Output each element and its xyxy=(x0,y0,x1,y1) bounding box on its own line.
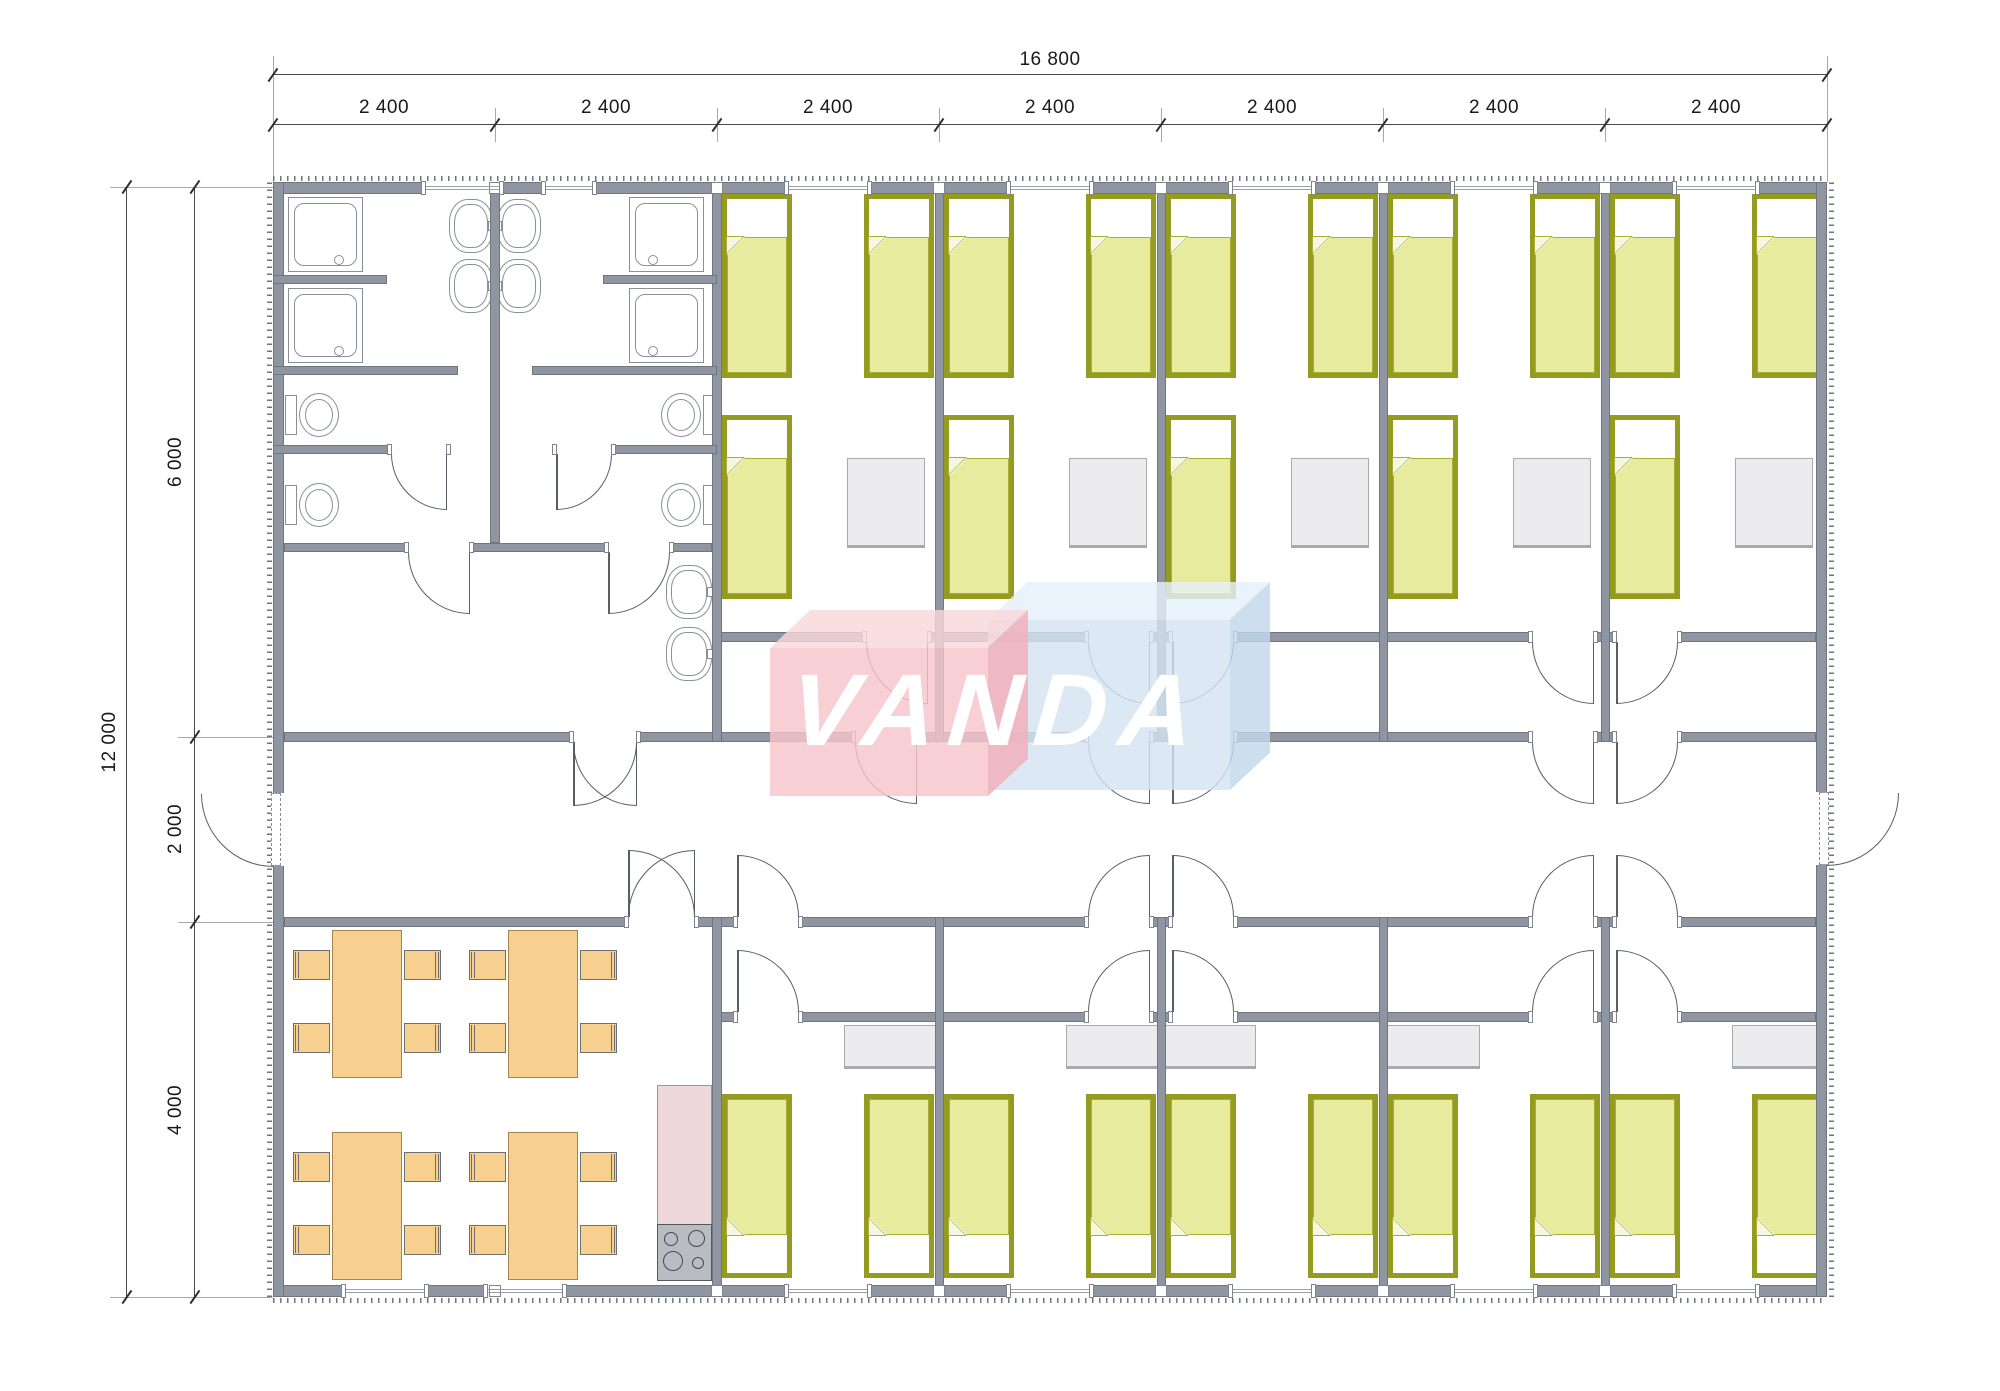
window-glazing xyxy=(545,186,593,187)
module-joint xyxy=(1377,1285,1389,1297)
door-leaf xyxy=(1616,855,1618,917)
door-leaf xyxy=(1149,950,1151,1012)
module-joint xyxy=(933,182,945,194)
chair-backrest xyxy=(611,1154,615,1180)
door-post xyxy=(1593,1011,1598,1023)
window-glazing xyxy=(1232,1289,1312,1290)
window-jamb xyxy=(784,1284,789,1298)
dim-label-module-2: 2 400 xyxy=(581,97,631,119)
bed-pillow xyxy=(727,420,787,458)
door-post xyxy=(1168,1011,1173,1023)
door-post xyxy=(1084,916,1089,928)
window xyxy=(1010,1285,1090,1297)
vanda-logo-text: VANDA xyxy=(782,640,1214,780)
wardrobe-front-edge xyxy=(1387,1067,1480,1069)
bed-pillow xyxy=(949,420,1009,458)
chair-backrest xyxy=(471,1227,475,1253)
bed-pillow xyxy=(1091,1235,1151,1273)
door-opening xyxy=(556,445,612,454)
door-leaf xyxy=(446,454,448,510)
module-joint xyxy=(933,1285,945,1297)
wardrobe-front-edge xyxy=(1069,546,1147,548)
wall xyxy=(490,182,500,543)
wardrobe xyxy=(844,1025,937,1067)
door-leaf xyxy=(636,742,638,806)
door-post xyxy=(1612,916,1617,928)
window-glazing xyxy=(788,186,868,187)
dining-table xyxy=(508,930,578,1078)
door-post xyxy=(1084,1011,1089,1023)
bed-pillow xyxy=(1757,1235,1817,1273)
door-leaf xyxy=(1593,855,1595,917)
door-post xyxy=(1528,1011,1533,1023)
window xyxy=(345,1285,425,1297)
dim-line-top-modules xyxy=(273,124,1827,125)
bed-pillow xyxy=(1091,199,1151,237)
wall xyxy=(1379,182,1388,742)
shower-tray-inner xyxy=(294,294,357,357)
door-opening xyxy=(408,543,470,552)
toilet-bowl-inner xyxy=(305,399,333,431)
door-post xyxy=(624,916,629,928)
door-opening xyxy=(1616,732,1678,742)
stove-burner-icon xyxy=(688,1230,705,1247)
bed-pillow xyxy=(727,199,787,237)
corrugation xyxy=(1829,182,1834,1297)
door-swing-arc xyxy=(1088,855,1150,917)
toilet-tank xyxy=(285,395,297,435)
wall xyxy=(273,445,391,454)
wardrobe xyxy=(847,458,925,546)
door-opening xyxy=(1532,917,1594,927)
window-jamb xyxy=(592,181,597,195)
door-post xyxy=(1149,916,1154,928)
bed-blanket xyxy=(1393,237,1453,373)
door-opening xyxy=(628,917,695,927)
door-opening xyxy=(737,917,799,927)
module-joint xyxy=(1599,182,1611,194)
wall xyxy=(1601,917,1610,1297)
door-swing-arc xyxy=(1532,742,1594,804)
wall xyxy=(1379,917,1388,1297)
door-opening xyxy=(1172,917,1234,927)
door-leaf xyxy=(469,552,471,614)
dim-label-total-height: 12 000 xyxy=(99,711,121,772)
window-glazing xyxy=(345,1289,425,1290)
dining-table xyxy=(508,1132,578,1280)
door-opening xyxy=(1532,732,1594,742)
dim-label-total-width: 16 800 xyxy=(1019,49,1080,71)
toilet-tank xyxy=(285,485,297,525)
door-post xyxy=(1593,731,1598,743)
chair-backrest xyxy=(435,952,439,978)
window-glazing xyxy=(1010,186,1090,187)
window-glazing xyxy=(1232,186,1312,187)
bed-pillow xyxy=(869,199,929,237)
door-opening xyxy=(608,543,670,552)
bed-pillow xyxy=(1171,1235,1231,1273)
door-leaf xyxy=(737,950,739,1012)
door-opening xyxy=(1088,1012,1150,1022)
corrugation xyxy=(267,182,272,1297)
window-glazing xyxy=(788,1289,868,1290)
window-jamb xyxy=(1533,181,1538,195)
door-post xyxy=(798,1011,803,1023)
door-swing-arc xyxy=(1532,642,1594,704)
floor-plan: 16 8002 4002 4002 4002 4002 4002 4002 40… xyxy=(0,0,2000,1391)
shower-drain-icon xyxy=(334,346,344,356)
door-post xyxy=(1593,631,1598,643)
door-swing-arc xyxy=(1532,855,1594,917)
door-leaf xyxy=(737,855,739,917)
door-leaf xyxy=(1616,950,1618,1012)
door-opening xyxy=(1088,917,1150,927)
stove-burner-icon xyxy=(663,1251,683,1271)
dim-label-section-bottom: 4 000 xyxy=(165,1085,187,1135)
door-swing-arc xyxy=(608,552,670,614)
window-glazing xyxy=(1454,189,1534,190)
bed-blanket xyxy=(1313,237,1373,373)
door-leaf xyxy=(1616,742,1618,804)
door-post xyxy=(1677,1011,1682,1023)
window-jamb xyxy=(1755,1284,1760,1298)
window-jamb xyxy=(499,181,504,195)
wardrobe-front-edge xyxy=(1513,546,1591,548)
dim-ext-line xyxy=(110,1297,273,1298)
window-jamb xyxy=(867,1284,872,1298)
chair-backrest xyxy=(611,1025,615,1051)
door-post xyxy=(404,542,409,553)
bed-blanket xyxy=(1535,237,1595,373)
door-opening xyxy=(737,1012,799,1022)
module-joint xyxy=(1599,1285,1611,1297)
bed-pillow xyxy=(1171,199,1231,237)
washbasin-inner xyxy=(454,204,488,248)
bed-pillow xyxy=(1313,1235,1373,1273)
wall xyxy=(712,917,722,1297)
door-opening xyxy=(391,445,447,454)
window-glazing xyxy=(1232,189,1312,190)
door-opening xyxy=(573,732,637,742)
bed-pillow xyxy=(1171,420,1231,458)
door-post xyxy=(1677,631,1682,643)
wardrobe xyxy=(1735,458,1813,546)
bed-blanket xyxy=(869,1099,929,1235)
washbasin-inner xyxy=(671,570,707,614)
dim-label-section-top: 6 000 xyxy=(165,437,187,487)
door-leaf xyxy=(556,454,558,510)
bed-pillow xyxy=(1615,420,1675,458)
wall xyxy=(273,275,387,284)
window-glazing xyxy=(425,186,500,187)
door-opening xyxy=(1532,632,1594,642)
module-joint xyxy=(711,182,723,194)
window-glazing xyxy=(1010,189,1090,190)
bed-pillow xyxy=(1535,199,1595,237)
wall xyxy=(1816,182,1827,1297)
window-jamb xyxy=(784,181,789,195)
chair-backrest xyxy=(435,1025,439,1051)
door-swing-arc xyxy=(391,454,447,510)
bed-blanket xyxy=(949,237,1009,373)
window-jamb xyxy=(541,181,546,195)
door-post xyxy=(798,916,803,928)
stove-burner-icon xyxy=(692,1257,704,1269)
dim-label-module-6: 2 400 xyxy=(1469,97,1519,119)
wall xyxy=(935,917,944,1297)
stove-burner-icon xyxy=(664,1232,678,1246)
corrugation xyxy=(273,1298,1827,1303)
bed-blanket xyxy=(1171,237,1231,373)
wardrobe xyxy=(1291,458,1369,546)
wall xyxy=(532,366,717,375)
dim-label-module-3: 2 400 xyxy=(803,97,853,119)
chair-backrest xyxy=(471,952,475,978)
wardrobe xyxy=(1069,458,1147,546)
bed-blanket xyxy=(727,1099,787,1235)
bed-pillow xyxy=(727,1235,787,1273)
door-post xyxy=(1168,916,1173,928)
window-jamb xyxy=(1089,181,1094,195)
dim-label-section-corridor: 2 000 xyxy=(165,804,187,854)
window-glazing xyxy=(1676,189,1756,190)
door-swing-arc xyxy=(1616,855,1678,917)
bed-pillow xyxy=(1535,1235,1595,1273)
window-jamb xyxy=(562,1284,567,1298)
bed-pillow xyxy=(1393,199,1453,237)
wall xyxy=(599,445,717,454)
window-glazing xyxy=(1676,1289,1756,1290)
window-glazing xyxy=(425,189,500,190)
shower-drain-icon xyxy=(648,346,658,356)
wall xyxy=(273,182,284,1297)
shower-tray-inner xyxy=(635,294,698,357)
wardrobe-front-edge xyxy=(1732,1067,1825,1069)
window xyxy=(1232,182,1312,194)
bed-blanket xyxy=(949,1099,1009,1235)
bed-pillow xyxy=(869,1235,929,1273)
window-jamb xyxy=(424,1284,429,1298)
bed-blanket xyxy=(727,237,787,373)
door-post xyxy=(733,916,738,928)
bed-pillow xyxy=(949,199,1009,237)
wardrobe-front-edge xyxy=(1163,1067,1256,1069)
washbasin-inner xyxy=(454,264,488,308)
window-glazing xyxy=(1010,1289,1090,1290)
door-leaf xyxy=(1172,855,1174,917)
bed-pillow xyxy=(1313,199,1373,237)
door-leaf xyxy=(1593,742,1595,804)
door-post xyxy=(1528,916,1533,928)
wardrobe-front-edge xyxy=(1735,546,1813,548)
window-glazing xyxy=(1454,1289,1534,1290)
wall xyxy=(603,275,717,284)
bed-blanket xyxy=(1313,1099,1373,1235)
window xyxy=(1676,182,1756,194)
door-swing-arc xyxy=(556,454,612,510)
chair-backrest xyxy=(611,1227,615,1253)
wall xyxy=(712,182,722,742)
window-jamb xyxy=(867,181,872,195)
entrance-door-leaf xyxy=(1819,792,1829,865)
window xyxy=(788,182,868,194)
window-jamb xyxy=(1089,1284,1094,1298)
window-jamb xyxy=(1228,1284,1233,1298)
window-glazing xyxy=(487,1292,563,1293)
wardrobe xyxy=(1732,1025,1825,1067)
door-swing-arc xyxy=(1172,950,1234,1012)
chair-backrest xyxy=(471,1025,475,1051)
door-swing-arc xyxy=(1532,950,1594,1012)
bed-pillow xyxy=(1393,1235,1453,1273)
window-glazing xyxy=(788,189,868,190)
door-opening xyxy=(1172,1012,1234,1022)
kitchen-stove xyxy=(657,1224,712,1281)
door-post xyxy=(552,444,557,455)
chair-backrest xyxy=(295,1227,299,1253)
door-opening xyxy=(1616,632,1678,642)
window-jamb xyxy=(1450,1284,1455,1298)
door-post xyxy=(469,542,474,553)
dim-label-module-5: 2 400 xyxy=(1247,97,1297,119)
shower-drain-icon xyxy=(334,255,344,265)
window-glazing xyxy=(487,1289,563,1290)
window xyxy=(1454,182,1534,194)
wardrobe xyxy=(1163,1025,1256,1067)
door-opening xyxy=(1616,1012,1678,1022)
window-jamb xyxy=(1311,181,1316,195)
module-joint xyxy=(1377,182,1389,194)
window-jamb xyxy=(1672,181,1677,195)
door-swing-arc xyxy=(737,950,799,1012)
chair-backrest xyxy=(435,1154,439,1180)
vanda-logo-blue-top xyxy=(988,582,1270,620)
window-glazing xyxy=(1232,1292,1312,1293)
window-jamb xyxy=(341,1284,346,1298)
door-swing-arc xyxy=(1088,950,1150,1012)
bed-blanket xyxy=(949,458,1009,594)
window-glazing xyxy=(1676,186,1756,187)
door-post xyxy=(733,1011,738,1023)
door-leaf xyxy=(694,850,696,917)
door-leaf xyxy=(608,552,610,614)
wardrobe-front-edge xyxy=(1066,1067,1159,1069)
module-joint xyxy=(1155,182,1167,194)
wardrobe xyxy=(1387,1025,1480,1067)
door-post xyxy=(1233,916,1238,928)
window xyxy=(1232,1285,1312,1297)
door-swing-arc xyxy=(1616,950,1678,1012)
bed-blanket xyxy=(1091,237,1151,373)
washbasin-inner xyxy=(671,632,707,676)
bed-blanket xyxy=(1757,237,1817,373)
door-swing-arc xyxy=(1172,855,1234,917)
door-post xyxy=(1612,731,1617,743)
window-jamb xyxy=(1006,1284,1011,1298)
wall xyxy=(1157,917,1166,1297)
door-post xyxy=(1528,631,1533,643)
dim-ext-line xyxy=(110,187,273,188)
module-joint xyxy=(489,1285,501,1297)
door-opening xyxy=(1616,917,1678,927)
toilet-bowl-inner xyxy=(305,489,333,521)
door-leaf xyxy=(1616,642,1618,704)
door-post xyxy=(669,542,674,553)
door-post xyxy=(387,444,392,455)
wall xyxy=(1601,182,1610,742)
window-jamb xyxy=(1006,181,1011,195)
bed-pillow xyxy=(1757,199,1817,237)
dim-line-left-total xyxy=(126,187,127,1297)
door-leaf xyxy=(1593,642,1595,704)
shower-drain-icon xyxy=(648,255,658,265)
bed-blanket xyxy=(869,237,929,373)
bed-pillow xyxy=(1615,1235,1675,1273)
window xyxy=(1676,1285,1756,1297)
window-glazing xyxy=(345,1292,425,1293)
door-opening xyxy=(1532,1012,1594,1022)
door-post xyxy=(1677,731,1682,743)
bed-blanket xyxy=(1171,458,1231,594)
window-jamb xyxy=(1228,181,1233,195)
window-jamb xyxy=(1755,181,1760,195)
module-joint xyxy=(711,1285,723,1297)
door-post xyxy=(694,916,699,928)
toilet-bowl-inner xyxy=(667,489,695,521)
dim-label-module-7: 2 400 xyxy=(1691,97,1741,119)
wall xyxy=(273,366,458,375)
door-post xyxy=(1149,1011,1154,1023)
entrance-door-leaf xyxy=(271,793,281,866)
dim-label-module-4: 2 400 xyxy=(1025,97,1075,119)
door-post xyxy=(446,444,451,455)
bed-blanket xyxy=(1393,458,1453,594)
window-jamb xyxy=(1311,1284,1316,1298)
bed-blanket xyxy=(1615,1099,1675,1235)
window xyxy=(545,182,593,194)
door-leaf xyxy=(1172,950,1174,1012)
door-post xyxy=(1612,1011,1617,1023)
chair-backrest xyxy=(295,952,299,978)
bed-blanket xyxy=(1615,458,1675,594)
bed-pillow xyxy=(949,1235,1009,1273)
window xyxy=(1010,182,1090,194)
door-leaf xyxy=(1593,950,1595,1012)
wardrobe xyxy=(1513,458,1591,546)
kitchen-counter xyxy=(657,1085,712,1225)
door-post xyxy=(604,542,609,553)
bed-blanket xyxy=(1393,1099,1453,1235)
window-jamb xyxy=(1672,1284,1677,1298)
window-glazing xyxy=(1454,1292,1534,1293)
window xyxy=(788,1285,868,1297)
entrance-door-arc xyxy=(1826,793,1899,866)
shower-tray-inner xyxy=(294,203,357,266)
window-jamb xyxy=(421,181,426,195)
door-post xyxy=(1593,916,1598,928)
shower-tray-inner xyxy=(635,203,698,266)
dim-label-module-1: 2 400 xyxy=(359,97,409,119)
bed-blanket xyxy=(727,458,787,594)
door-post xyxy=(611,444,616,455)
dim-line-top-total xyxy=(273,74,1827,75)
bed-blanket xyxy=(1091,1099,1151,1235)
window-glazing xyxy=(788,1292,868,1293)
dining-table xyxy=(332,930,402,1078)
chair-backrest xyxy=(471,1154,475,1180)
door-swing-arc xyxy=(408,552,470,614)
door-post xyxy=(1677,916,1682,928)
